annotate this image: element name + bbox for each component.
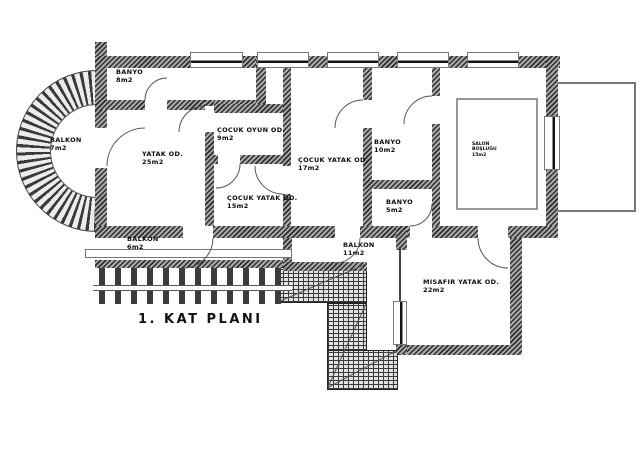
door-arc-bath5 xyxy=(410,204,432,226)
doors-and-lines-layer xyxy=(0,0,640,451)
plan-title: 1. KAT PLANI xyxy=(138,312,263,327)
door-arc-balcony-left xyxy=(107,128,145,166)
stair-diagonal-3 xyxy=(329,351,396,387)
door-arc-balcony6 xyxy=(183,238,213,268)
floor-plan-canvas: BANYO 8m2 BALKON 7m2 YATAK OD. 25m2 ÇOCU… xyxy=(0,0,640,451)
door-arc-childroom17 xyxy=(335,100,363,128)
door-arc-childroom15 xyxy=(255,166,283,194)
door-arc-balcony11 xyxy=(335,238,360,263)
door-arc-bath10 xyxy=(404,96,432,124)
door-arc-playroom xyxy=(216,164,240,188)
door-arc-bedroom xyxy=(179,106,205,132)
door-arc-bath-top xyxy=(145,78,167,100)
door-arc-guest xyxy=(478,238,508,268)
stair-diagonal-1 xyxy=(278,264,366,302)
stair-diagonal-2 xyxy=(328,304,366,387)
